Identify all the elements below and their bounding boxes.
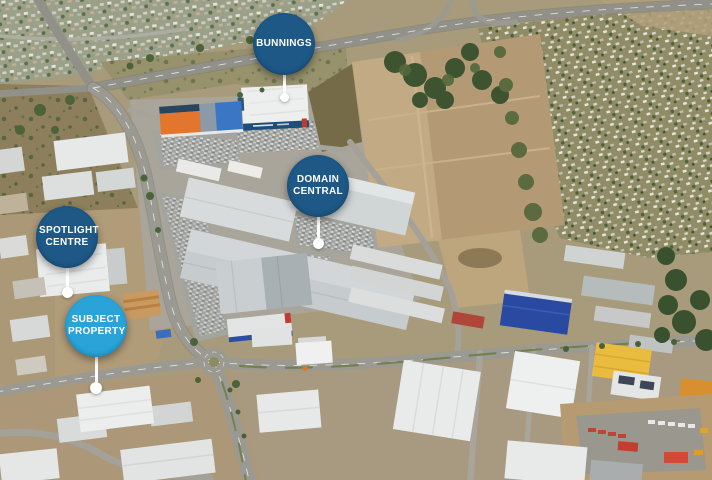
- strip-shops: [122, 289, 161, 320]
- marker-domain-central-label: DOMAIN CENTRAL: [290, 174, 346, 198]
- marker-subject-property: SUBJECT PROPERTY: [65, 295, 127, 425]
- marker-domain-central-circle: DOMAIN CENTRAL: [287, 155, 349, 217]
- marker-subject-property-label: SUBJECT PROPERTY: [68, 314, 124, 338]
- marker-subject-property-dot: [90, 382, 102, 394]
- marker-subject-property-stem: [95, 356, 98, 382]
- aerial-photo-page: BUNNINGS DOMAIN CENTRAL SPOTLIGHT CENTRE…: [0, 0, 712, 480]
- marker-spotlight-centre-label: SPOTLIGHT CENTRE: [39, 225, 95, 249]
- marker-domain-central-stem: [317, 216, 320, 240]
- warehouse-centre-south: [256, 389, 321, 432]
- marker-bunnings-stem: [283, 74, 286, 95]
- roundabout: [204, 352, 224, 372]
- marker-spotlight-centre-circle: SPOTLIGHT CENTRE: [36, 206, 98, 268]
- marker-bunnings: BUNNINGS: [253, 13, 315, 133]
- marker-domain-central-dot: [313, 238, 324, 249]
- hardware-store-building: [159, 101, 243, 138]
- marker-bunnings-dot: [280, 93, 289, 102]
- marker-subject-property-circle: SUBJECT PROPERTY: [65, 295, 127, 357]
- marker-domain-central: DOMAIN CENTRAL: [287, 155, 349, 275]
- marker-spotlight-centre-stem: [66, 267, 69, 288]
- warehouse-south-1: [393, 360, 481, 441]
- marker-bunnings-circle: BUNNINGS: [253, 13, 315, 75]
- marker-bunnings-label: BUNNINGS: [256, 38, 312, 50]
